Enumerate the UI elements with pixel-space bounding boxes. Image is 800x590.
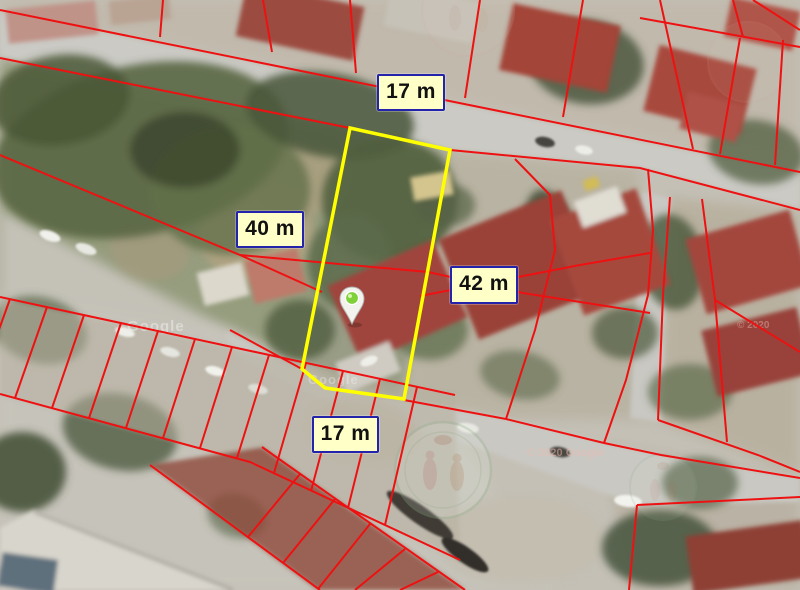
copyright-watermark: © 2020 Google <box>527 447 604 459</box>
measurement-label-left: 40 m <box>236 211 304 248</box>
measurement-label-right: 42 m <box>450 266 518 304</box>
seal-watermark-topright <box>708 22 788 102</box>
measurement-label-top: 17 m <box>377 74 445 111</box>
pin-head <box>346 292 359 305</box>
seal-watermark-small <box>630 454 696 520</box>
map-canvas[interactable]: Google Google © 2020 Google © 2020 <box>0 0 800 590</box>
measurement-label-bottom: 17 m <box>312 416 379 453</box>
seal-watermark-large <box>395 422 491 518</box>
copyright-watermark: © 2020 <box>737 320 770 331</box>
